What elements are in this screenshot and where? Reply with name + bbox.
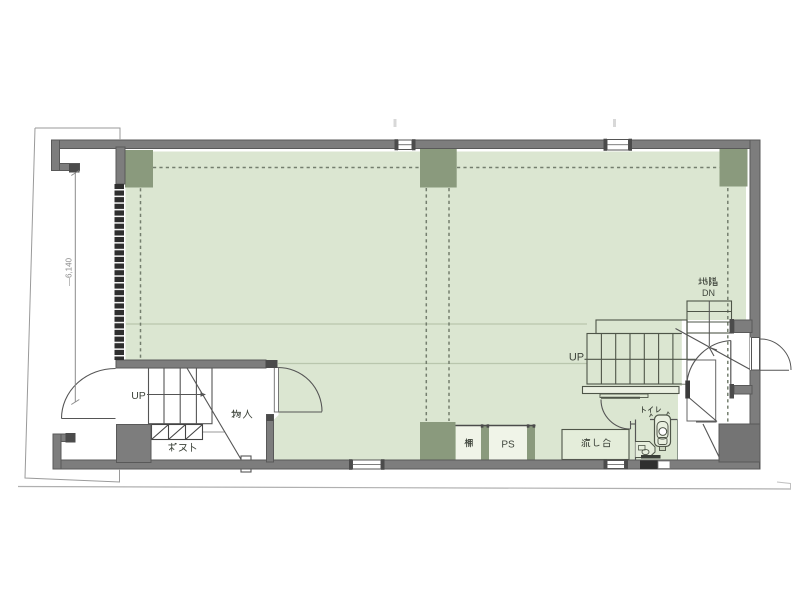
svg-text:UP: UP — [131, 390, 146, 402]
svg-text:—6,140: —6,140 — [65, 257, 74, 286]
svg-text:UP: UP — [569, 352, 584, 364]
svg-text:DN: DN — [702, 288, 715, 298]
svg-text:PS: PS — [501, 440, 515, 451]
